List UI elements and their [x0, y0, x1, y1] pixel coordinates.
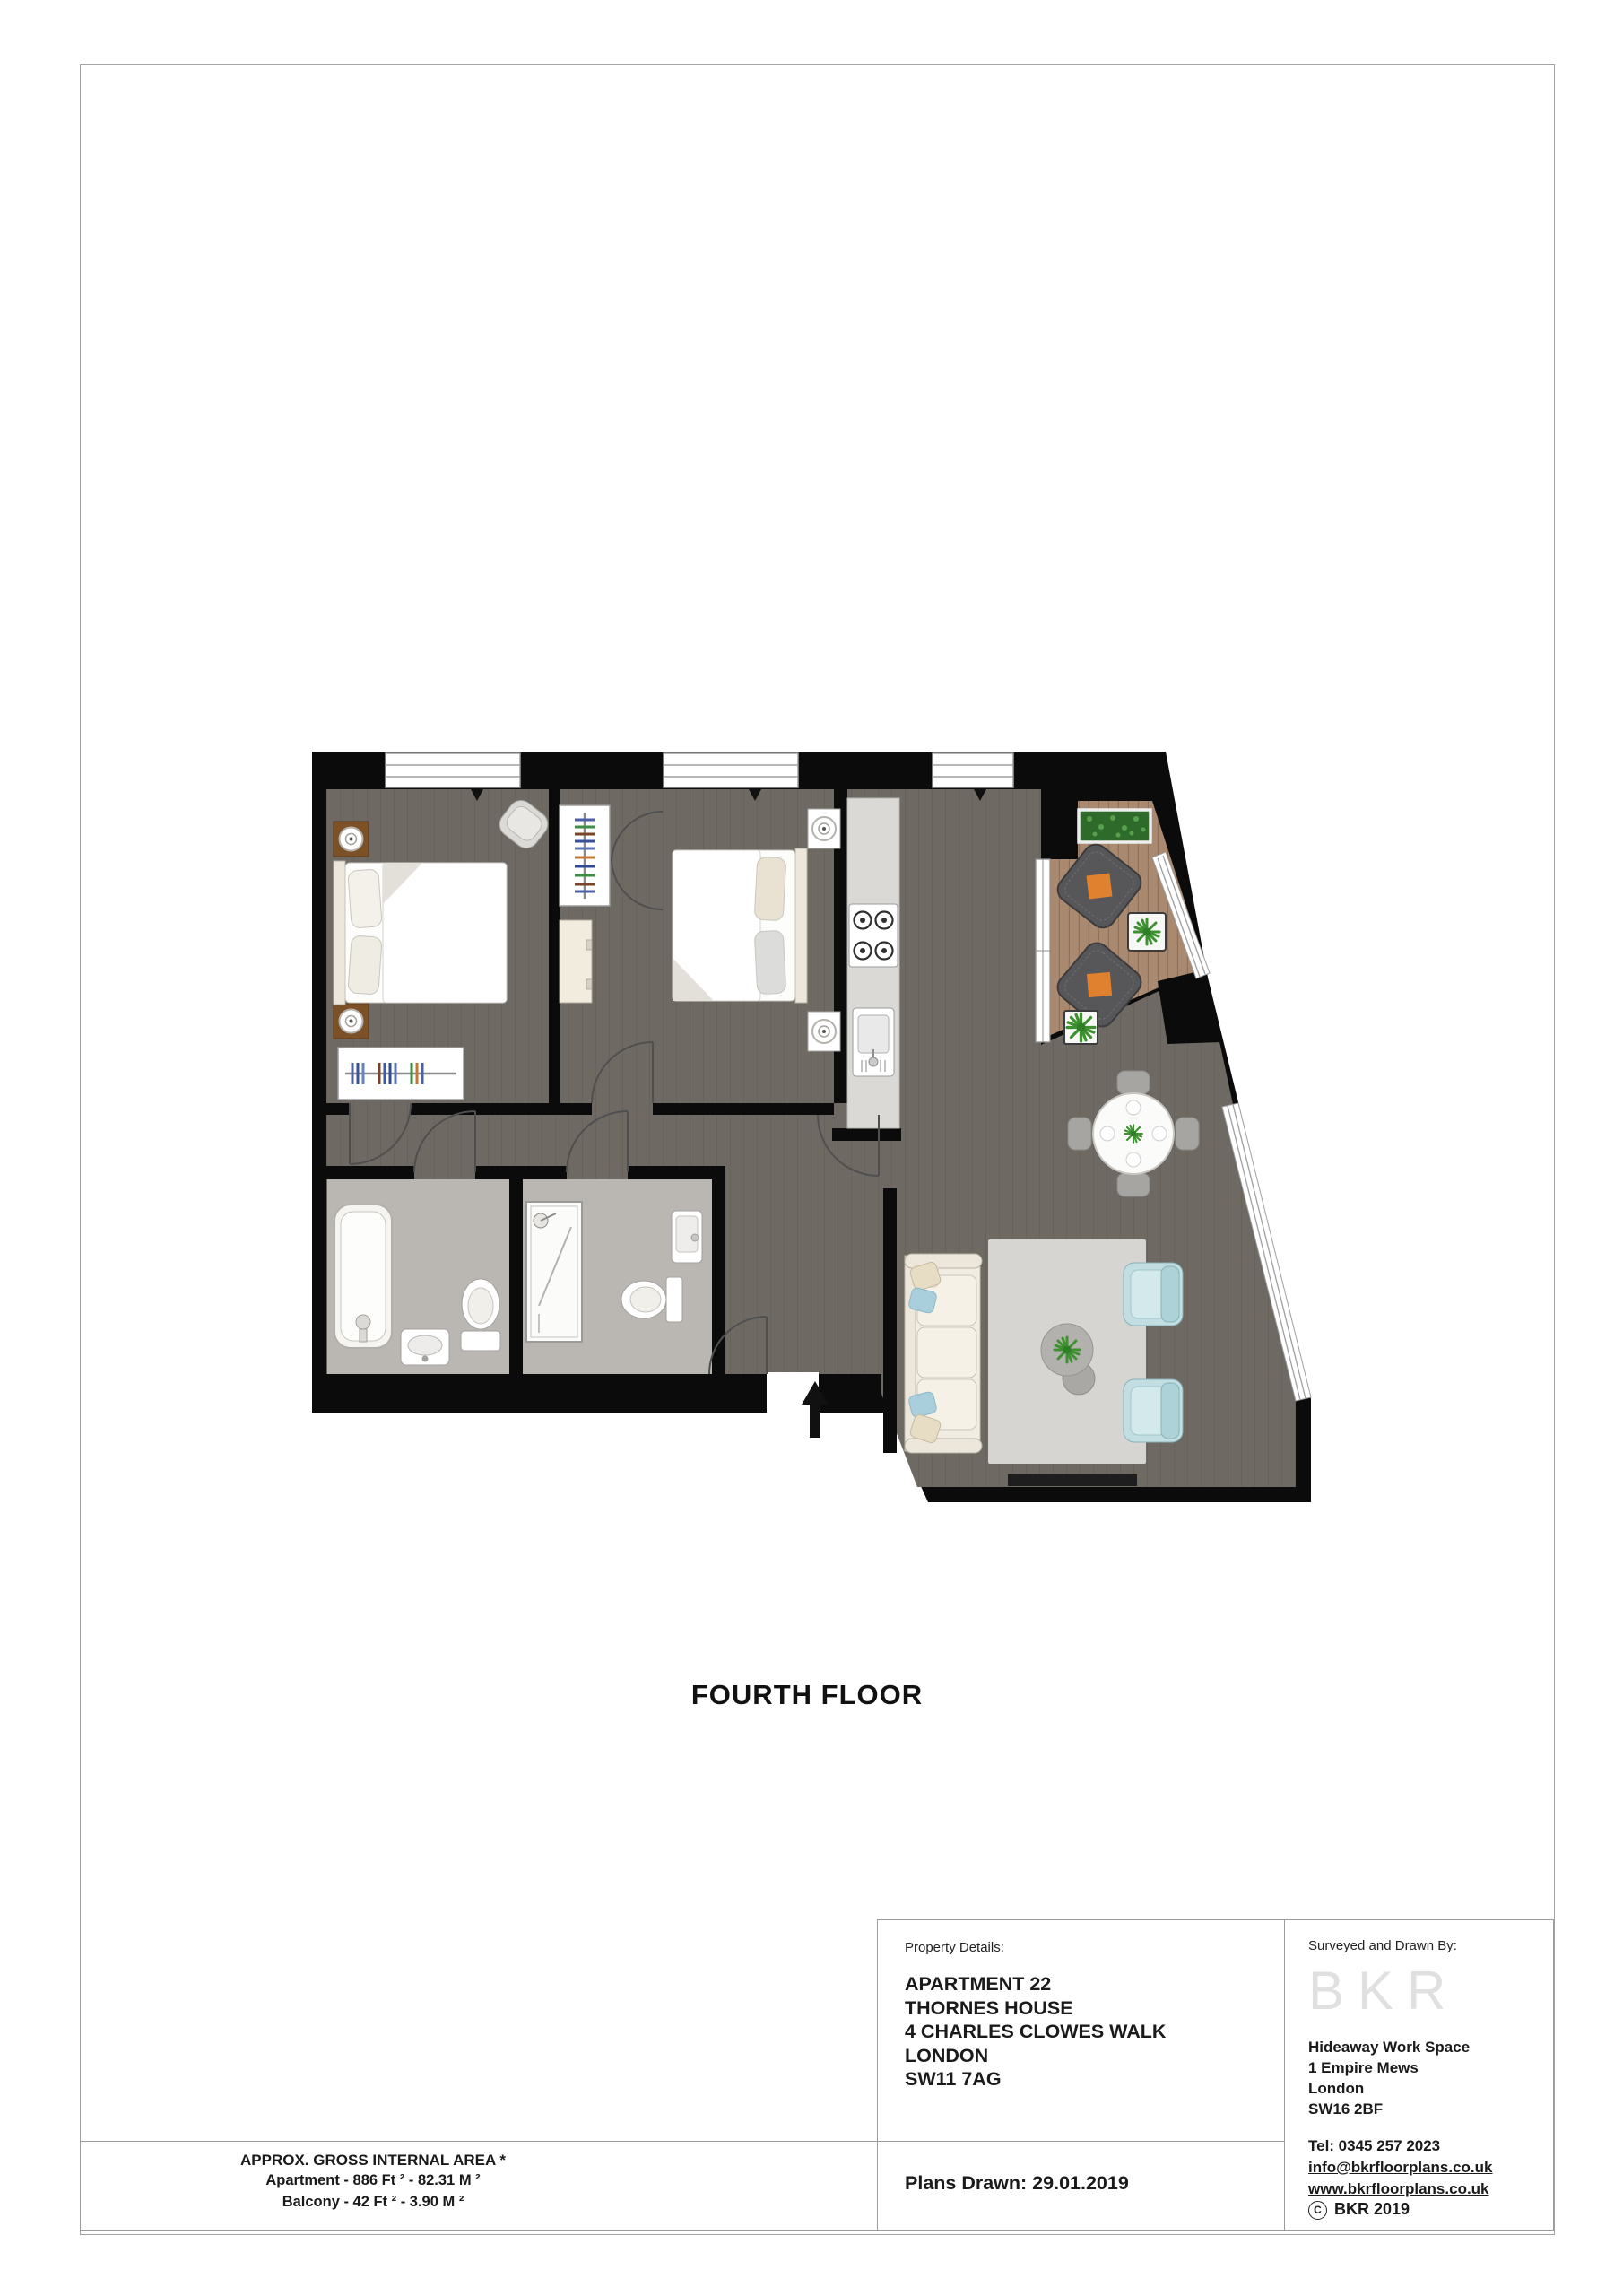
wall-patch — [1158, 970, 1221, 1044]
surveyor-box: Surveyed and Drawn By: BKR Hideaway Work… — [1284, 1919, 1554, 2231]
lamp-icon — [340, 828, 363, 851]
area-summary-title: APPROX. GROSS INTERNAL AREA * — [81, 2152, 665, 2170]
floorplan-page: FOURTH FLOOR APPROX. GROSS INTERNAL AREA… — [0, 0, 1623, 2296]
toilet-icon — [621, 1277, 682, 1322]
floor-title: FOURTH FLOOR — [583, 1679, 1031, 1711]
surveyor-address-line: 1 Empire Mews — [1308, 2057, 1470, 2078]
surveyor-website-link[interactable]: www.bkrfloorplans.co.uk — [1308, 2179, 1492, 2200]
surveyor-address: Hideaway Work Space 1 Empire Mews London… — [1308, 2037, 1470, 2119]
side-table — [1128, 913, 1166, 951]
floorplan-drawing — [300, 726, 1323, 1516]
toilet-icon — [461, 1279, 500, 1351]
lamp-icon — [812, 817, 836, 840]
copyright-icon: C — [1308, 2201, 1327, 2220]
drawer-unit — [560, 920, 592, 1003]
tv-unit — [1008, 1474, 1137, 1486]
kitchen — [847, 798, 899, 1128]
address-line: LONDON — [905, 2044, 1166, 2068]
basin-icon — [401, 1329, 449, 1365]
wardrobe — [338, 1048, 464, 1100]
bkr-logo: BKR — [1308, 1960, 1459, 2022]
surveyor-address-line: SW16 2BF — [1308, 2099, 1470, 2119]
double-bed — [673, 848, 807, 1003]
property-details-label: Property Details: — [905, 1940, 1004, 1955]
sofa — [905, 1254, 982, 1453]
plant-icon — [1055, 1337, 1080, 1362]
armchair — [1124, 1379, 1183, 1442]
address-line: SW11 7AG — [905, 2067, 1166, 2092]
property-address: APARTMENT 22 THORNES HOUSE 4 CHARLES CLO… — [905, 1972, 1166, 2092]
copyright-line: CBKR 2019 — [1308, 2200, 1410, 2220]
double-bed — [334, 861, 507, 1004]
surveyor-address-line: Hideaway Work Space — [1308, 2037, 1470, 2057]
address-line: 4 CHARLES CLOWES WALK — [905, 2020, 1166, 2044]
bathtub-icon — [334, 1205, 392, 1348]
basin-icon — [672, 1211, 702, 1263]
surveyor-contact: Tel: 0345 257 2023 info@bkrfloorplans.co… — [1308, 2135, 1492, 2200]
address-line: THORNES HOUSE — [905, 1996, 1166, 2021]
lamp-icon — [340, 1010, 363, 1033]
lamp-icon — [812, 1020, 836, 1043]
address-line: APARTMENT 22 — [905, 1972, 1166, 1996]
plans-drawn-date: Plans Drawn: 29.01.2019 — [905, 2172, 1129, 2195]
apartment-area: Apartment - 886 Ft ² - 82.31 M ² — [81, 2170, 665, 2191]
shower-icon — [526, 1202, 582, 1342]
area-summary-box: APPROX. GROSS INTERNAL AREA * Apartment … — [80, 2141, 878, 2231]
surveyor-label: Surveyed and Drawn By: — [1308, 1938, 1457, 1953]
plans-drawn-box: Plans Drawn: 29.01.2019 — [877, 2141, 1285, 2231]
balcony-area: Balcony - 42 Ft ² - 3.90 M ² — [81, 2191, 665, 2213]
hob-icon — [849, 904, 898, 967]
sink-icon — [853, 1008, 894, 1076]
plant-icon — [1067, 1013, 1095, 1041]
property-details-box: Property Details: APARTMENT 22 THORNES H… — [877, 1919, 1285, 2142]
surveyor-tel: Tel: 0345 257 2023 — [1308, 2135, 1492, 2157]
plant-pot — [1064, 1011, 1098, 1044]
planter-box — [1079, 810, 1150, 842]
surveyor-address-line: London — [1308, 2078, 1470, 2099]
surveyor-email-link[interactable]: info@bkrfloorplans.co.uk — [1308, 2157, 1492, 2179]
balcony-sliding-door — [1036, 859, 1050, 1042]
armchair — [1124, 1263, 1183, 1326]
plant-icon — [1124, 1125, 1142, 1143]
copyright-text: BKR 2019 — [1334, 2200, 1410, 2218]
plant-icon — [1134, 919, 1159, 944]
